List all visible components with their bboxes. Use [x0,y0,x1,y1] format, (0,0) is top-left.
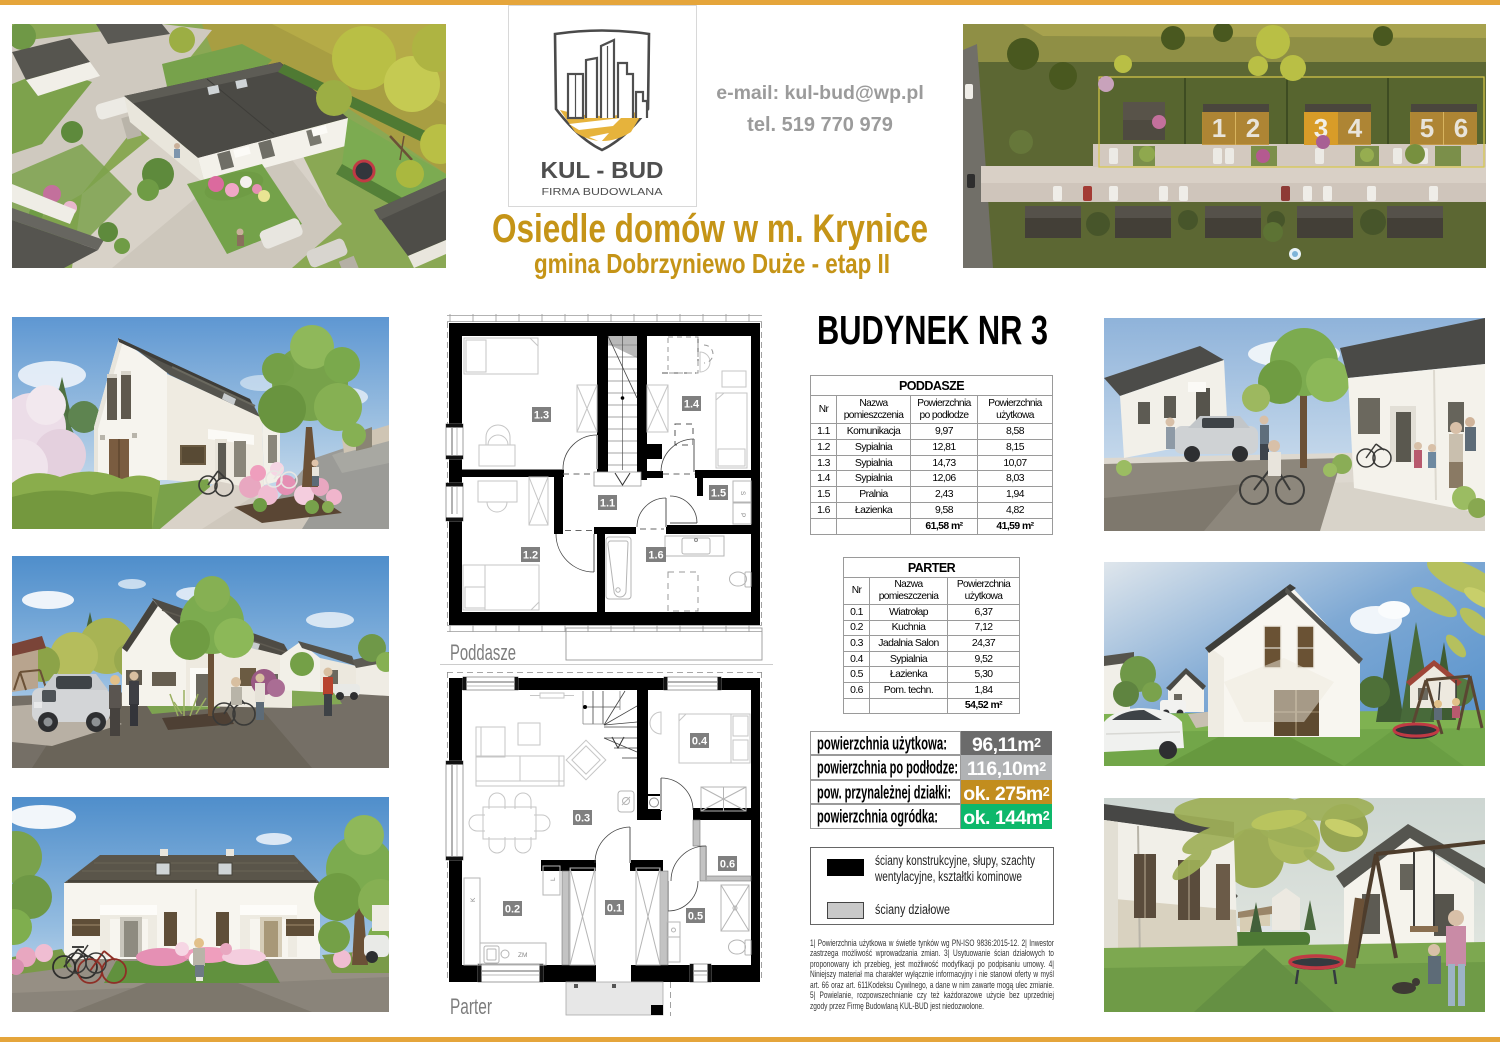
svg-text:ZM: ZM [518,952,527,959]
svg-text:powierzchnia ogródka:: powierzchnia ogródka: [817,807,938,827]
svg-text:L: L [550,877,557,881]
svg-text:Osiedle domów w m. Krynice: Osiedle domów w m. Krynice [492,208,928,250]
svg-text:1.2: 1.2 [523,550,538,562]
svg-text:5: 5 [1420,113,1434,143]
svg-text:BUDYNEK NR 3: BUDYNEK NR 3 [817,307,1048,350]
svg-text:P: P [739,513,746,517]
svg-text:2: 2 [1246,113,1260,143]
svg-text:Parter: Parter [450,994,492,1019]
svg-text:powierzchnia użytkowa:: powierzchnia użytkowa: [817,733,947,753]
svg-text:0.5: 0.5 [688,911,703,923]
svg-text:ściany działowe: ściany działowe [875,902,950,917]
svg-text:1.5: 1.5 [711,488,726,500]
svg-text:K: K [470,897,477,902]
svg-text:gmina Dobrzyniewo Duże - etap: gmina Dobrzyniewo Duże - etap II [534,248,890,279]
svg-text:wentylacyjne, kształtki komino: wentylacyjne, kształtki kominowe [875,869,1022,884]
svg-text:powierzchnia po podłodze:: powierzchnia po podłodze: [817,758,958,778]
svg-text:6: 6 [1454,113,1468,143]
svg-text:0.4: 0.4 [692,736,708,748]
svg-text:KUL - BUD: KUL - BUD [541,157,664,183]
svg-text:1.4: 1.4 [684,399,700,411]
svg-text:0.1: 0.1 [607,903,622,915]
svg-text:1.1: 1.1 [600,498,615,510]
svg-text:S: S [739,491,746,496]
svg-text:Poddasze: Poddasze [450,640,516,665]
svg-text:pow. przynależnej działki:: pow. przynależnej działki: [817,782,951,802]
svg-text:0.2: 0.2 [505,904,520,916]
svg-text:4: 4 [1348,113,1363,143]
svg-text:0.6: 0.6 [720,859,735,871]
svg-text:1.6: 1.6 [648,550,663,562]
svg-text:0.3: 0.3 [575,813,590,825]
svg-text:FIRMA BUDOWLANA: FIRMA BUDOWLANA [542,187,663,198]
svg-text:ściany konstrukcyjne, słupy, s: ściany konstrukcyjne, słupy, szachty [875,853,1035,868]
svg-text:1.3: 1.3 [534,410,549,422]
svg-text:1: 1 [1212,113,1226,143]
